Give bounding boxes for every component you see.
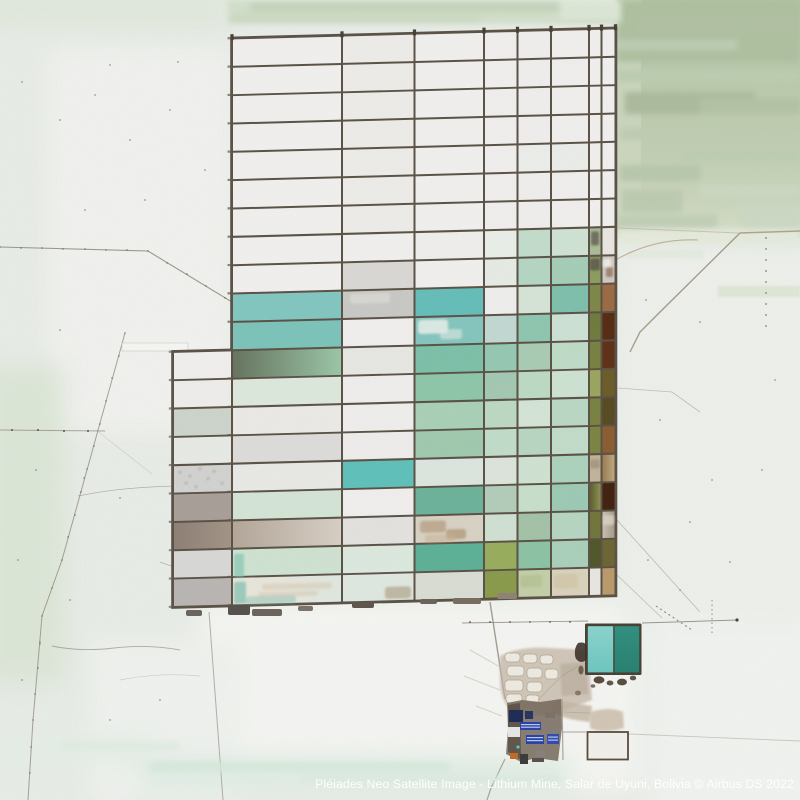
svg-text:Pléiades Neo Satellite Image -: Pléiades Neo Satellite Image - Lithium M… <box>315 777 794 791</box>
